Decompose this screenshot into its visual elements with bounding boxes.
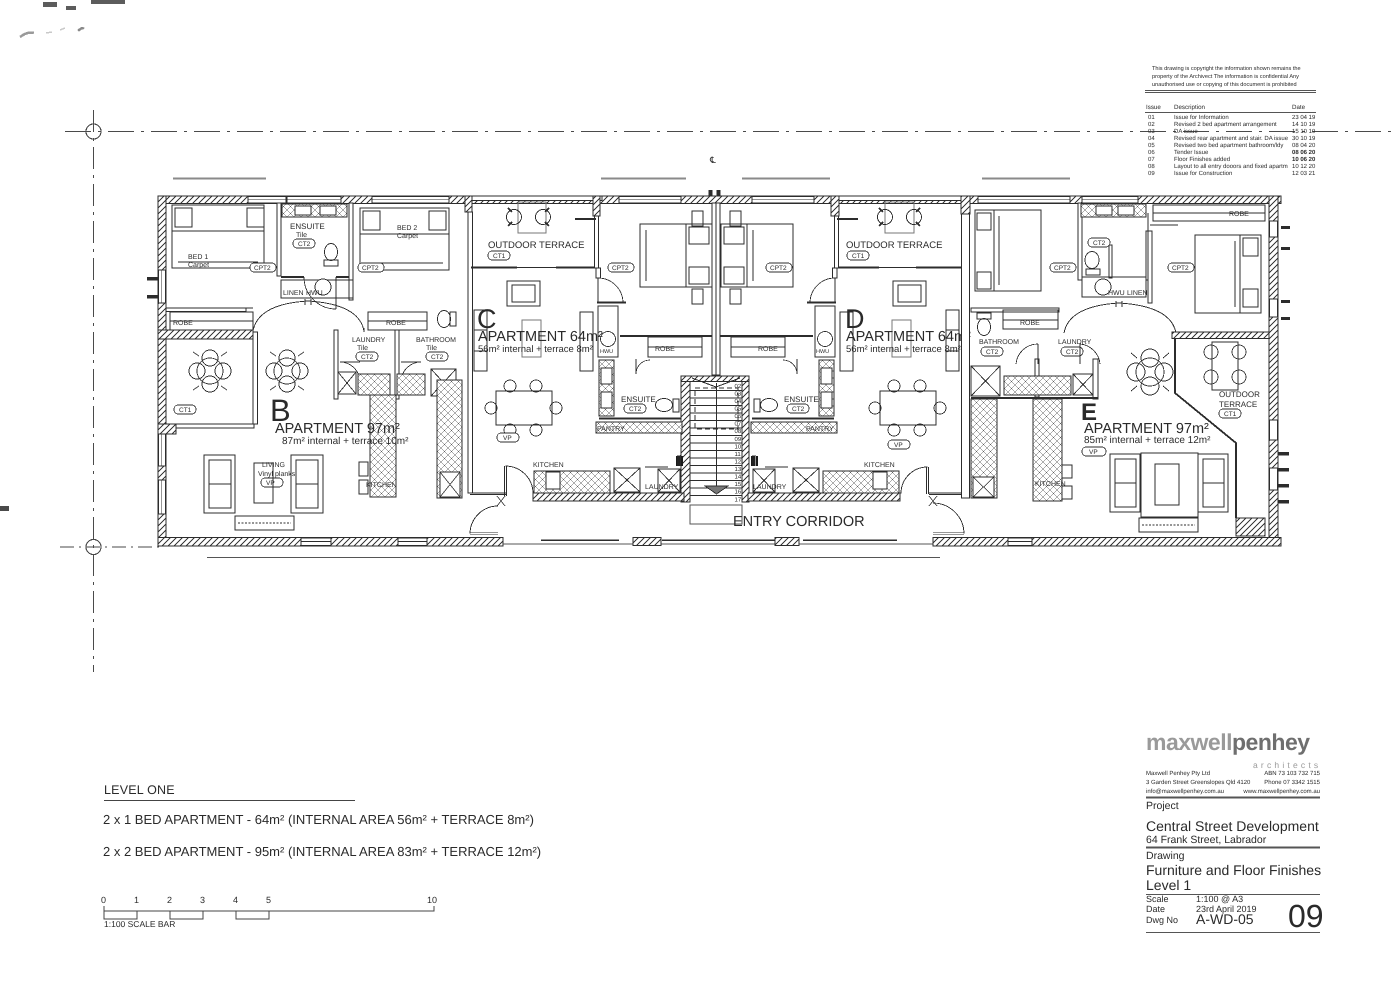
svg-text:3: 3 [200, 895, 205, 905]
svg-text:Issue: Issue [1146, 104, 1161, 111]
svg-text:PANTRY: PANTRY [806, 426, 834, 433]
svg-text:KITCHEN: KITCHEN [533, 462, 564, 469]
svg-text:08 04 20: 08 04 20 [1292, 142, 1316, 149]
svg-text:LAUNDRY: LAUNDRY [645, 484, 679, 491]
svg-text:Issue for Information: Issue for Information [1174, 114, 1229, 121]
svg-text:13: 13 [735, 466, 742, 473]
svg-text:2 x 2 BED APARTMENT - 95m² (I: 2 x 2 BED APARTMENT - 95m² (INTERNAL ARE… [103, 844, 541, 859]
svg-text:DA issue: DA issue [1174, 128, 1198, 135]
svg-text:HWU: HWU [306, 290, 323, 297]
svg-text:LINEN: LINEN [1127, 290, 1148, 297]
svg-text:CT1: CT1 [852, 253, 865, 260]
svg-text:14 10 19: 14 10 19 [1292, 121, 1316, 128]
svg-text:56m² internal + terrace 8m²: 56m² internal + terrace 8m² [478, 344, 593, 355]
svg-text:16: 16 [735, 489, 742, 496]
svg-text:2: 2 [167, 895, 172, 905]
svg-text:TERRACE: TERRACE [1219, 400, 1257, 409]
svg-text:ENSUITE: ENSUITE [621, 395, 656, 404]
svg-text:CT1: CT1 [179, 407, 192, 414]
svg-text:APARTMENT 64m²: APARTMENT 64m² [846, 329, 971, 345]
svg-text:VP: VP [503, 435, 512, 442]
svg-text:08: 08 [1148, 163, 1155, 170]
svg-text:BED 1: BED 1 [188, 254, 208, 261]
svg-text:1:100 SCALE BAR: 1:100 SCALE BAR [104, 919, 175, 929]
svg-text:CT2: CT2 [792, 406, 805, 413]
svg-text:LAUNDRY: LAUNDRY [753, 484, 787, 491]
svg-text:06: 06 [735, 413, 742, 420]
svg-text:Tile: Tile [357, 344, 368, 352]
svg-text:87m² internal + terrace 10m²: 87m² internal + terrace 10m² [282, 436, 409, 447]
svg-text:15: 15 [735, 481, 742, 488]
svg-text:CPT2: CPT2 [770, 265, 787, 272]
svg-text:05: 05 [735, 406, 742, 413]
svg-text:OUTDOOR TERRACE: OUTDOOR TERRACE [488, 240, 584, 251]
svg-text:BATHROOM: BATHROOM [416, 337, 456, 344]
svg-text:01: 01 [1148, 114, 1155, 121]
svg-text:KITCHEN: KITCHEN [1035, 481, 1066, 488]
svg-text:15 10 19: 15 10 19 [1292, 128, 1316, 135]
svg-text:ENSUITE: ENSUITE [784, 395, 819, 404]
svg-text:10 06 20: 10 06 20 [1292, 156, 1316, 163]
svg-text:Revised 2 bed apartment arrang: Revised 2 bed apartment arrangement [1174, 121, 1277, 128]
svg-text:Date: Date [1292, 104, 1306, 111]
svg-text:ABN 73 103 732 715: ABN 73 103 732 715 [1264, 770, 1320, 777]
svg-text:LINEN: LINEN [283, 290, 304, 297]
svg-text:HWU: HWU [600, 349, 613, 355]
svg-text:02: 02 [735, 383, 742, 390]
svg-text:Carpet: Carpet [397, 233, 418, 240]
svg-text:12 03 21: 12 03 21 [1292, 170, 1316, 177]
svg-text:CPT2: CPT2 [362, 265, 379, 272]
svg-text:LAUNDRY: LAUNDRY [352, 337, 386, 344]
svg-text:ROBE: ROBE [1020, 320, 1040, 327]
svg-text:04: 04 [1148, 135, 1155, 142]
svg-text:CT2: CT2 [629, 406, 642, 413]
svg-text:BED 2: BED 2 [397, 225, 417, 232]
svg-text:02: 02 [1148, 121, 1155, 128]
svg-text:Tender Issue: Tender Issue [1174, 149, 1209, 156]
svg-text:12: 12 [735, 459, 742, 466]
svg-text:08 06 20: 08 06 20 [1292, 149, 1316, 156]
svg-text:Date: Date [1146, 904, 1165, 914]
svg-text:KITCHEN: KITCHEN [366, 482, 397, 489]
svg-text:10: 10 [427, 895, 437, 905]
svg-text:Carpet: Carpet [188, 262, 209, 269]
svg-text:1: 1 [134, 895, 139, 905]
svg-text:CT2: CT2 [1093, 240, 1106, 247]
svg-text:Maxwell Penhey Pty Ltd: Maxwell Penhey Pty Ltd [1146, 770, 1210, 777]
svg-text:Scale: Scale [1146, 894, 1169, 904]
svg-text:23 04 19: 23 04 19 [1292, 114, 1316, 121]
svg-text:architects: architects [1253, 760, 1321, 770]
svg-text:1:100 @ A3: 1:100 @ A3 [1196, 894, 1243, 904]
svg-text:30 10 19: 30 10 19 [1292, 135, 1316, 142]
svg-text:CPT2: CPT2 [612, 265, 629, 272]
svg-text:Revised two bed apartment bath: Revised two bed apartment bathroom/ldy [1174, 142, 1283, 149]
svg-text:3 Garden Street Greenslopes: 3 Garden Street Greenslopes Qld 4120 [1146, 779, 1251, 786]
svg-text:CPT2: CPT2 [1054, 265, 1071, 272]
svg-text:07: 07 [1148, 156, 1155, 163]
svg-text:LAUNDRY: LAUNDRY [1058, 339, 1092, 346]
svg-text:Central Street Development: Central Street Development [1146, 818, 1319, 834]
svg-text:℄: ℄ [709, 155, 716, 165]
svg-text:OUTDOOR TERRACE: OUTDOOR TERRACE [846, 240, 942, 251]
svg-text:Dwg No: Dwg No [1146, 915, 1178, 925]
svg-text:ROBE: ROBE [655, 346, 675, 353]
svg-text:HWU: HWU [1108, 290, 1125, 297]
svg-text:04: 04 [735, 398, 742, 405]
svg-text:CT2: CT2 [431, 354, 444, 361]
svg-text:Description: Description [1174, 104, 1206, 111]
svg-text:03: 03 [1148, 128, 1155, 135]
svg-text:OUTDOOR: OUTDOOR [1219, 390, 1260, 399]
svg-text:Tile: Tile [296, 231, 307, 239]
svg-text:ENTRY CORRIDOR: ENTRY CORRIDOR [733, 514, 865, 530]
svg-text:2 x 1 BED APARTMENT - 64m² (IN: 2 x 1 BED APARTMENT - 64m² (INTERNAL ARE… [103, 812, 534, 827]
svg-text:Drawing: Drawing [1146, 850, 1185, 862]
svg-text:PANTRY: PANTRY [597, 426, 625, 433]
svg-text:4: 4 [233, 895, 238, 905]
svg-text:05: 05 [1148, 142, 1155, 149]
svg-text:03: 03 [735, 391, 742, 398]
svg-text:LEVEL ONE: LEVEL ONE [104, 783, 175, 797]
svg-text:ENSUITE: ENSUITE [290, 222, 325, 231]
svg-text:property of the Archivect The: property of the Archivect The informatio… [1152, 73, 1299, 80]
svg-text:06: 06 [1148, 149, 1155, 156]
svg-text:APARTMENT 97m²: APARTMENT 97m² [275, 421, 400, 437]
svg-text:HWU: HWU [816, 349, 829, 355]
svg-text:17: 17 [735, 497, 742, 504]
svg-text:Phone 07 3342 1515: Phone 07 3342 1515 [1264, 779, 1320, 786]
svg-text:A-WD-05: A-WD-05 [1196, 911, 1254, 927]
svg-text:Revised rear apartment and sta: Revised rear apartment and stair. DA iss… [1174, 135, 1289, 142]
svg-text:0: 0 [101, 895, 106, 905]
svg-text:CPT2: CPT2 [254, 265, 271, 272]
svg-text:CT2: CT2 [361, 354, 374, 361]
svg-text:CT2: CT2 [298, 241, 311, 248]
svg-text:Layout to all entry dooors and: Layout to all entry dooors and fixed apa… [1174, 163, 1288, 170]
svg-text:14: 14 [735, 474, 742, 481]
svg-text:Furniture and Floor Finishes: Furniture and Floor Finishes [1146, 862, 1321, 878]
svg-text:Floor Finishes added: Floor Finishes added [1174, 156, 1230, 163]
svg-text:info@maxwellpenhey.com.au: info@maxwellpenhey.com.au [1146, 788, 1224, 795]
svg-text:ROBE: ROBE [1229, 211, 1249, 218]
svg-text:09: 09 [735, 436, 742, 443]
svg-text:www.maxwellpenhey.com.au: www.maxwellpenhey.com.au [1242, 788, 1320, 795]
svg-text:ROBE: ROBE [386, 320, 406, 327]
svg-text:Issue for Construction: Issue for Construction [1174, 170, 1232, 177]
svg-text:10 12 20: 10 12 20 [1292, 163, 1316, 170]
svg-text:ROBE: ROBE [173, 320, 193, 327]
svg-text:09: 09 [1148, 170, 1155, 177]
svg-text:5: 5 [266, 895, 271, 905]
svg-text:unauthorised use or copying of: unauthorised use or copying of this docu… [1152, 81, 1297, 88]
svg-text:CT1: CT1 [493, 253, 506, 260]
svg-text:85m² internal + terrace 12m²: 85m² internal + terrace 12m² [1084, 435, 1211, 446]
svg-text:11: 11 [735, 451, 742, 458]
svg-text:Project: Project [1146, 800, 1179, 812]
svg-text:KITCHEN: KITCHEN [864, 462, 895, 469]
svg-text:CT2: CT2 [986, 349, 999, 356]
svg-text:08: 08 [735, 428, 742, 435]
svg-text:CPT2: CPT2 [1172, 265, 1189, 272]
svg-text:ROBE: ROBE [758, 346, 778, 353]
svg-text:CT1: CT1 [1224, 411, 1237, 418]
svg-text:56m² internal + terrace 8m²: 56m² internal + terrace 8m² [846, 344, 961, 355]
svg-text:maxwellpenhey: maxwellpenhey [1146, 729, 1310, 755]
svg-text:64 Frank Street, Labrador: 64 Frank Street, Labrador [1146, 834, 1267, 846]
svg-text:BATHROOM: BATHROOM [979, 339, 1019, 346]
svg-text:VP: VP [894, 442, 903, 449]
svg-text:07: 07 [735, 421, 742, 428]
svg-text:10: 10 [735, 444, 742, 451]
svg-text:This drawing is copyright the: This drawing is copyright the informatio… [1152, 65, 1301, 72]
svg-text:APARTMENT 64m²: APARTMENT 64m² [478, 329, 603, 345]
svg-text:VP: VP [1089, 449, 1098, 456]
svg-text:Vinyl planks: Vinyl planks [258, 470, 296, 478]
svg-text:09: 09 [1288, 898, 1324, 934]
svg-text:Tile: Tile [426, 344, 437, 352]
svg-text:Level 1: Level 1 [1146, 877, 1191, 893]
svg-text:CT2: CT2 [1066, 349, 1079, 356]
